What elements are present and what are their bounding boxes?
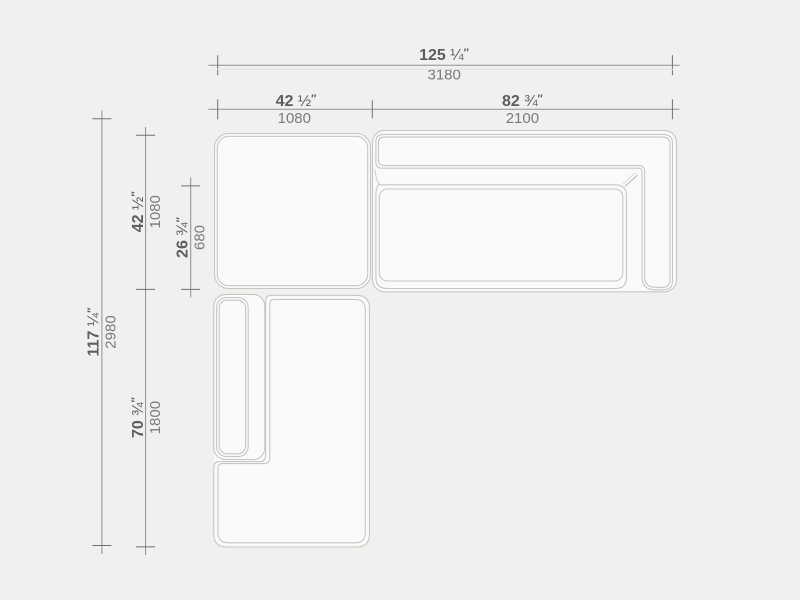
svg-text:1080: 1080 bbox=[278, 110, 311, 127]
svg-text:117 ¼″: 117 ¼″ bbox=[86, 307, 103, 357]
svg-text:680: 680 bbox=[192, 225, 209, 250]
svg-text:42 ½″: 42 ½″ bbox=[130, 191, 147, 233]
svg-text:125 ¼″: 125 ¼″ bbox=[419, 47, 469, 64]
svg-text:2980: 2980 bbox=[103, 315, 120, 348]
svg-text:2100: 2100 bbox=[506, 110, 539, 127]
svg-text:42 ½″: 42 ½″ bbox=[276, 93, 318, 110]
svg-text:70 ¾″: 70 ¾″ bbox=[130, 396, 147, 438]
svg-text:82 ¾″: 82 ¾″ bbox=[502, 93, 544, 110]
svg-text:26 ¾″: 26 ¾″ bbox=[175, 216, 192, 258]
svg-text:3180: 3180 bbox=[428, 66, 461, 83]
svg-text:1080: 1080 bbox=[147, 195, 164, 228]
svg-text:1800: 1800 bbox=[147, 401, 164, 434]
